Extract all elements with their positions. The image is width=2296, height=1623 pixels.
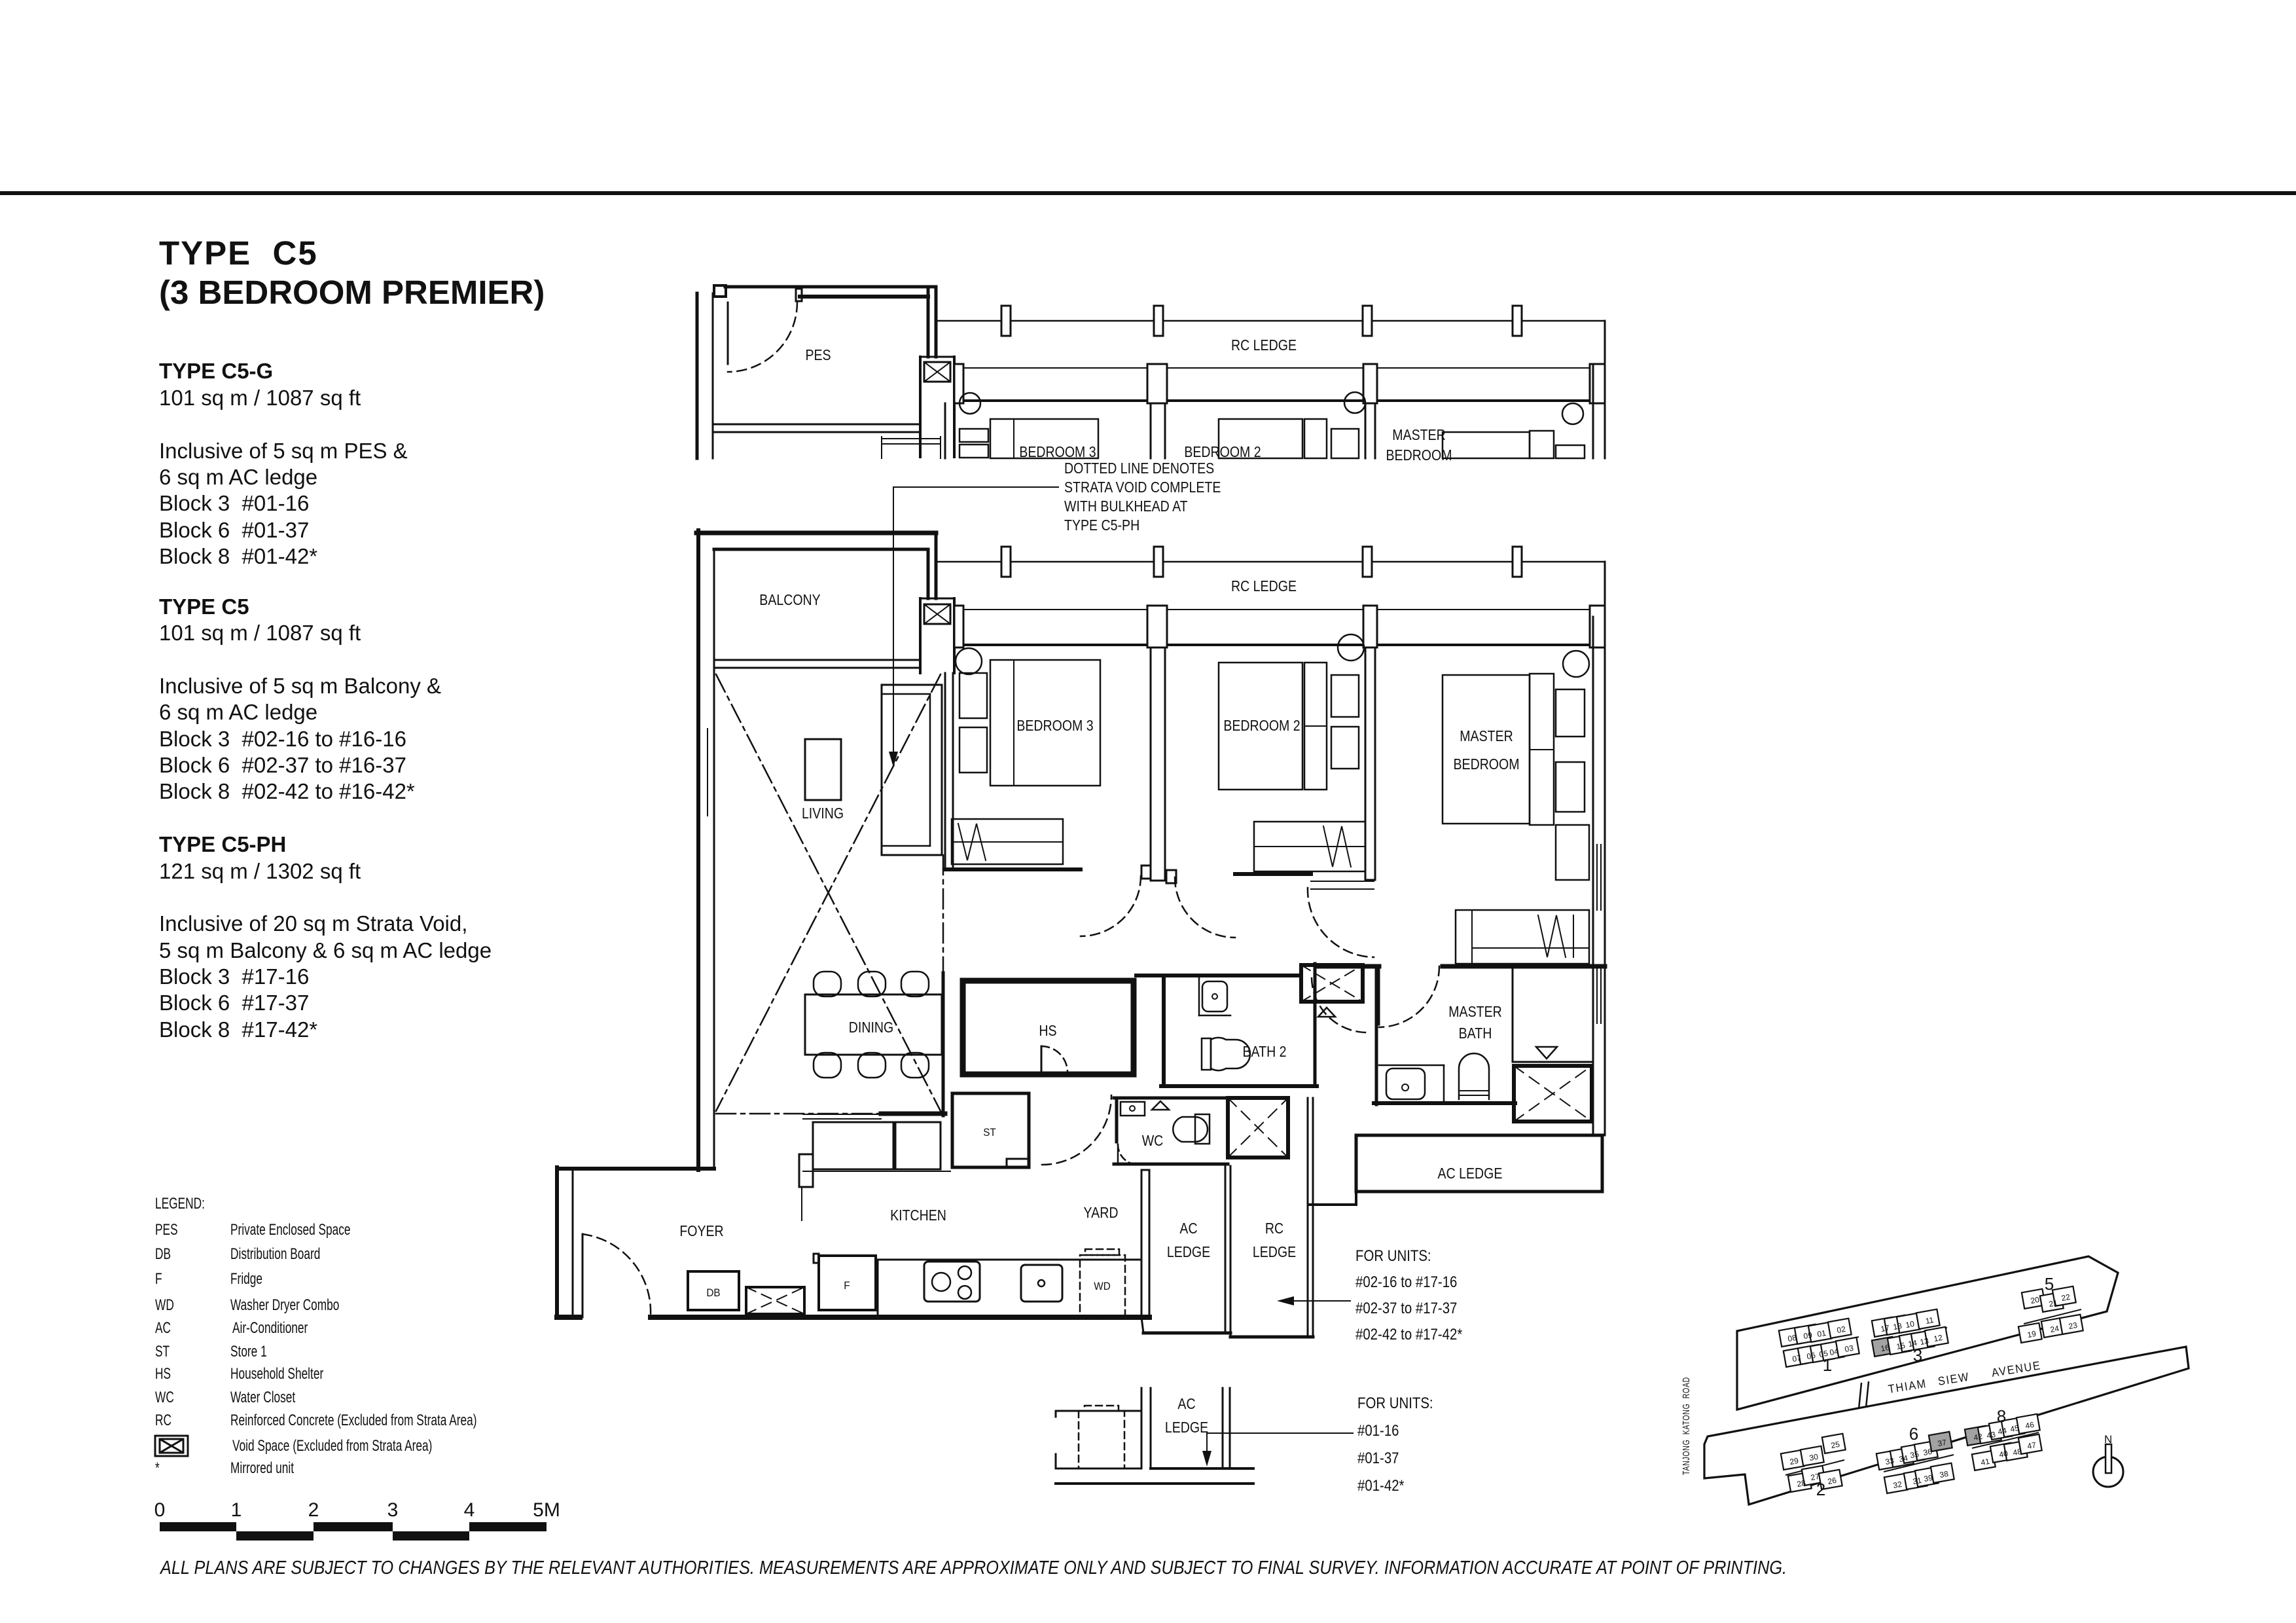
svg-text:DB: DB: [706, 1286, 720, 1299]
svg-text:TYPE C5-PH: TYPE C5-PH: [159, 832, 286, 856]
svg-text:Washer Dryer Combo: Washer Dryer Combo: [230, 1296, 339, 1314]
svg-text:09: 09: [1803, 1330, 1813, 1341]
svg-text:10: 10: [1905, 1319, 1915, 1330]
svg-text:40: 40: [1998, 1449, 2009, 1459]
svg-text:F: F: [844, 1279, 850, 1292]
svg-text:21: 21: [2048, 1298, 2058, 1309]
svg-text:5 sq m Balcony & 6 sq m AC led: 5 sq m Balcony & 6 sq m AC ledge: [159, 938, 492, 962]
svg-text:ALL PLANS ARE SUBJECT TO CHANG: ALL PLANS ARE SUBJECT TO CHANGES BY THE …: [159, 1558, 1787, 1578]
svg-text:03: 03: [1844, 1343, 1854, 1354]
svg-text:41: 41: [1980, 1457, 1990, 1467]
svg-text:RC LEDGE: RC LEDGE: [1231, 337, 1297, 354]
svg-text:Air-Conditioner: Air-Conditioner: [232, 1319, 308, 1337]
svg-text:5: 5: [2045, 1274, 2054, 1294]
svg-text:STRATA VOID COMPLETE: STRATA VOID COMPLETE: [1064, 479, 1221, 496]
svg-text:BALCONY: BALCONY: [759, 591, 820, 608]
svg-text:24: 24: [2049, 1324, 2060, 1334]
svg-text:N: N: [2104, 1433, 2112, 1446]
svg-text:48: 48: [2012, 1447, 2022, 1457]
svg-text:FOR UNITS:: FOR UNITS:: [1357, 1395, 1433, 1412]
svg-text:#01-42*: #01-42*: [1357, 1477, 1405, 1495]
svg-text:Block 8 #17-42*: Block 8 #17-42*: [159, 1017, 317, 1042]
svg-text:Block 3 #01-16: Block 3 #01-16: [159, 491, 309, 515]
svg-text:101 sq m / 1087 sq ft: 101 sq m / 1087 sq ft: [159, 386, 361, 410]
svg-text:4: 4: [464, 1499, 475, 1521]
svg-text:35: 35: [1909, 1450, 1920, 1460]
svg-text:F: F: [155, 1270, 162, 1288]
svg-text:PES: PES: [805, 346, 831, 363]
svg-text:WD: WD: [155, 1296, 174, 1314]
svg-text:36: 36: [1922, 1447, 1933, 1457]
svg-text:KITCHEN: KITCHEN: [890, 1207, 946, 1224]
svg-text:6 sq m AC ledge: 6 sq m AC ledge: [159, 465, 317, 489]
svg-text:20: 20: [2030, 1295, 2040, 1305]
svg-text:TYPE C5-G: TYPE C5-G: [159, 359, 273, 383]
svg-text:3: 3: [1913, 1345, 1922, 1365]
svg-text:Block 3 #02-16 to #16-16: Block 3 #02-16 to #16-16: [159, 727, 406, 751]
svg-text:37: 37: [1937, 1438, 1947, 1448]
svg-text:BEDROOM: BEDROOM: [1386, 447, 1452, 464]
svg-text:Inclusive of 5 sq m Balcony &: Inclusive of 5 sq m Balcony &: [159, 674, 441, 698]
svg-text:32: 32: [1892, 1480, 1903, 1490]
svg-text:#02-42 to #17-42*: #02-42 to #17-42*: [1355, 1326, 1462, 1343]
svg-text:0: 0: [154, 1499, 166, 1521]
svg-text:18: 18: [1892, 1321, 1903, 1332]
svg-text:RC LEDGE: RC LEDGE: [1231, 577, 1297, 594]
svg-text:#01-37: #01-37: [1357, 1450, 1399, 1467]
svg-text:AC LEDGE: AC LEDGE: [1438, 1165, 1503, 1182]
svg-text:BATH 2: BATH 2: [1243, 1043, 1287, 1060]
svg-text:2: 2: [1816, 1480, 1825, 1499]
svg-text:BEDROOM 2: BEDROOM 2: [1223, 717, 1300, 734]
svg-text:MASTER: MASTER: [1460, 727, 1513, 744]
svg-text:#02-37 to #17-37: #02-37 to #17-37: [1355, 1300, 1457, 1317]
svg-text:45: 45: [2009, 1423, 2020, 1434]
svg-text:Household Shelter: Household Shelter: [230, 1365, 323, 1383]
svg-text:01: 01: [1816, 1328, 1827, 1339]
svg-text:2: 2: [308, 1499, 319, 1521]
svg-text:AC: AC: [155, 1319, 171, 1337]
svg-text:MASTER: MASTER: [1448, 1003, 1502, 1020]
svg-text:BEDROOM 3: BEDROOM 3: [1019, 443, 1096, 460]
svg-text:Block 3 #17-16: Block 3 #17-16: [159, 964, 309, 989]
svg-text:Fridge: Fridge: [230, 1270, 262, 1288]
svg-text:29: 29: [1789, 1456, 1799, 1467]
svg-text:BEDROOM 2: BEDROOM 2: [1184, 443, 1261, 460]
svg-text:33: 33: [1884, 1456, 1895, 1467]
svg-text:34: 34: [1898, 1453, 1909, 1464]
svg-text:LEDGE: LEDGE: [1165, 1419, 1208, 1436]
svg-text:Water Closet: Water Closet: [230, 1389, 295, 1406]
svg-text:39: 39: [1923, 1473, 1933, 1484]
svg-text:17: 17: [1880, 1323, 1890, 1334]
svg-text:Mirrored unit: Mirrored unit: [230, 1459, 294, 1477]
svg-text:MASTER: MASTER: [1392, 426, 1446, 443]
svg-text:WITH BULKHEAD AT: WITH BULKHEAD AT: [1064, 498, 1188, 515]
svg-text:Private Enclosed Space: Private Enclosed Space: [230, 1221, 351, 1239]
svg-text:TYPE C5: TYPE C5: [159, 594, 249, 619]
svg-text:DB: DB: [155, 1245, 171, 1263]
svg-text:AC: AC: [1177, 1395, 1195, 1412]
svg-text:28: 28: [1796, 1478, 1806, 1489]
svg-text:07: 07: [1791, 1353, 1802, 1364]
svg-text:23: 23: [2068, 1321, 2078, 1331]
svg-text:DINING: DINING: [849, 1019, 893, 1036]
svg-text:Block 6 #01-37: Block 6 #01-37: [159, 518, 309, 542]
svg-text:42: 42: [1973, 1432, 1983, 1442]
svg-text:Block 8 #01-42*: Block 8 #01-42*: [159, 544, 317, 568]
svg-text:LIVING: LIVING: [802, 805, 844, 822]
svg-text:22: 22: [2060, 1292, 2071, 1303]
svg-text:26: 26: [1827, 1476, 1837, 1486]
svg-text:WC: WC: [155, 1389, 174, 1406]
svg-text:LEDGE: LEDGE: [1167, 1243, 1210, 1260]
svg-text:1: 1: [1823, 1355, 1832, 1375]
svg-text:08: 08: [1787, 1333, 1797, 1343]
svg-text:43: 43: [1986, 1430, 1996, 1440]
svg-text:Distribution Board: Distribution Board: [230, 1245, 320, 1263]
svg-text:ST: ST: [983, 1126, 996, 1139]
svg-text:#02-16 to #17-16: #02-16 to #17-16: [1355, 1273, 1457, 1291]
svg-text:12: 12: [1933, 1333, 1943, 1343]
svg-text:FOYER: FOYER: [679, 1222, 723, 1239]
svg-text:15: 15: [1895, 1341, 1906, 1351]
svg-text:Block 8 #02-42 to #16-42*: Block 8 #02-42 to #16-42*: [159, 779, 415, 803]
svg-text:Void Space (Excluded from Stra: Void Space (Excluded from Strata Area): [232, 1437, 432, 1455]
svg-text:38: 38: [1939, 1469, 1949, 1480]
svg-text:WD: WD: [1094, 1280, 1111, 1292]
svg-text:101 sq m / 1087 sq ft: 101 sq m / 1087 sq ft: [159, 621, 361, 645]
svg-text:HS: HS: [1039, 1022, 1056, 1039]
svg-text:1: 1: [231, 1499, 242, 1521]
svg-text:46: 46: [2024, 1420, 2035, 1431]
svg-text:LEGEND:: LEGEND:: [155, 1195, 205, 1213]
svg-text:PES: PES: [155, 1221, 178, 1239]
svg-text:RC: RC: [155, 1412, 171, 1429]
svg-text:5M: 5M: [533, 1499, 560, 1521]
svg-text:Reinforced Concrete (Excluded: Reinforced Concrete (Excluded from Strat…: [230, 1412, 477, 1429]
svg-text:6 sq m AC ledge: 6 sq m AC ledge: [159, 700, 317, 724]
svg-text:LEDGE: LEDGE: [1253, 1243, 1296, 1260]
svg-text:FOR UNITS:: FOR UNITS:: [1355, 1247, 1431, 1265]
svg-text:TYPE C5: TYPE C5: [159, 234, 318, 272]
svg-text:6: 6: [1909, 1424, 1918, 1444]
svg-text:47: 47: [2026, 1440, 2037, 1451]
svg-text:HS: HS: [155, 1365, 171, 1383]
svg-text:121 sq m / 1302 sq ft: 121 sq m / 1302 sq ft: [159, 859, 361, 883]
svg-text:Block 6 #02-37 to #16-37: Block 6 #02-37 to #16-37: [159, 753, 406, 777]
svg-text:44: 44: [1997, 1426, 2007, 1436]
svg-text:31: 31: [1912, 1476, 1922, 1486]
svg-text:Inclusive of 5 sq m PES &: Inclusive of 5 sq m PES &: [159, 439, 408, 463]
svg-text:AC: AC: [1179, 1220, 1197, 1237]
svg-text:06: 06: [1806, 1351, 1816, 1361]
svg-text:30: 30: [1808, 1452, 1819, 1463]
svg-text:25: 25: [1830, 1440, 1840, 1450]
svg-text:*: *: [155, 1459, 160, 1477]
svg-text:TANJONG KATONG ROAD: TANJONG KATONG ROAD: [1681, 1377, 1692, 1475]
svg-text:(3 BEDROOM PREMIER): (3 BEDROOM PREMIER): [159, 274, 545, 311]
svg-text:RC: RC: [1265, 1220, 1283, 1237]
svg-text:Inclusive of 20 sq m Strata Vo: Inclusive of 20 sq m Strata Void,: [159, 911, 467, 936]
svg-text:DOTTED LINE DENOTES: DOTTED LINE DENOTES: [1064, 460, 1214, 477]
svg-text:YARD: YARD: [1084, 1204, 1119, 1221]
svg-text:TYPE C5-PH: TYPE C5-PH: [1064, 517, 1139, 534]
svg-text:8: 8: [1997, 1406, 2006, 1426]
svg-text:WC: WC: [1142, 1132, 1164, 1149]
svg-text:BEDROOM: BEDROOM: [1454, 756, 1520, 773]
svg-text:#01-16: #01-16: [1357, 1422, 1399, 1440]
svg-text:19: 19: [2026, 1329, 2037, 1340]
svg-text:Store 1: Store 1: [230, 1343, 267, 1360]
svg-text:BATH: BATH: [1459, 1025, 1492, 1042]
svg-text:ST: ST: [155, 1343, 170, 1360]
svg-text:BEDROOM 3: BEDROOM 3: [1016, 717, 1093, 734]
svg-text:Block 6 #17-37: Block 6 #17-37: [159, 991, 309, 1015]
svg-text:3: 3: [387, 1499, 399, 1521]
svg-text:16: 16: [1880, 1343, 1890, 1353]
svg-text:02: 02: [1836, 1324, 1846, 1335]
